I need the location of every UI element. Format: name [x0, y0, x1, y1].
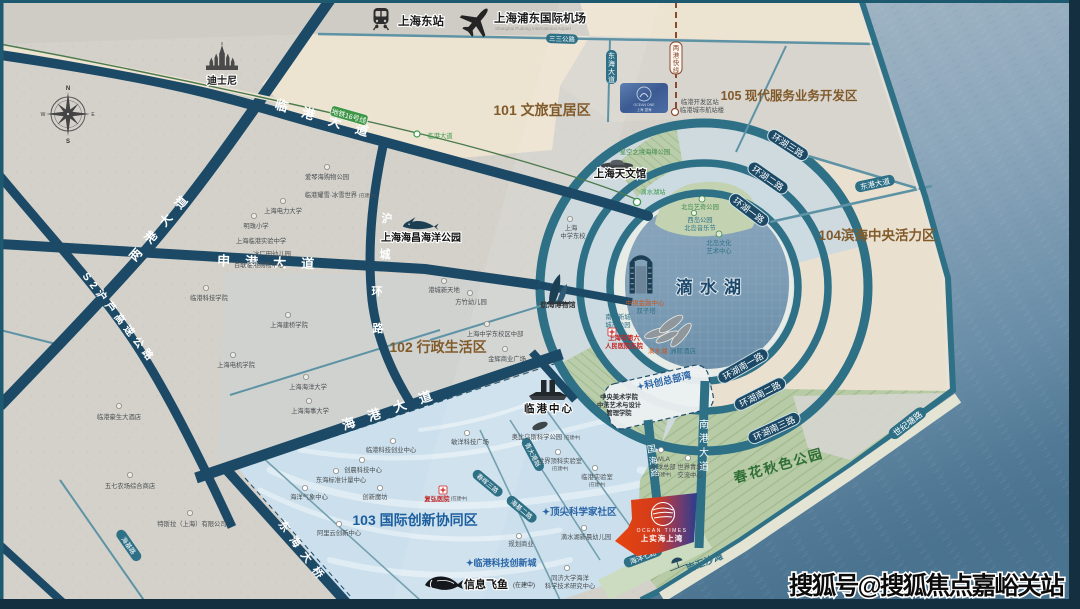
svg-text:两港快线: 两港快线	[673, 44, 680, 75]
svg-text:洲际酒店: 洲际酒店	[670, 346, 697, 355]
svg-text:上海临港实验中学: 上海临港实验中学	[236, 236, 286, 245]
svg-text:临港中心: 临港中心	[524, 402, 574, 415]
svg-text:上海建桥学院: 上海建桥学院	[270, 320, 308, 329]
svg-text:全球总部: 全球总部	[650, 462, 675, 471]
svg-text:临港科技创业中心: 临港科技创业中心	[366, 445, 417, 454]
svg-text:五七农场综合商店: 五七农场综合商店	[105, 481, 155, 490]
svg-text:S: S	[66, 139, 70, 145]
svg-text:信息飞鱼: 信息飞鱼	[464, 577, 508, 591]
svg-text:中学东校: 中学东校	[560, 231, 586, 240]
svg-text:临港城市航站楼: 临港城市航站楼	[680, 105, 725, 114]
svg-text:WLA: WLA	[656, 456, 670, 463]
svg-text:南汇新城: 南汇新城	[605, 312, 631, 321]
svg-text:101 文旅宜居区: 101 文旅宜居区	[493, 102, 590, 118]
svg-text:上海海洋大学: 上海海洋大学	[289, 382, 327, 391]
svg-text:北岛音乐节: 北岛音乐节	[684, 223, 715, 232]
svg-text:中银金融中心: 中银金融中心	[626, 298, 666, 307]
svg-text:艺术中心: 艺术中心	[706, 246, 732, 255]
svg-text:上海东站: 上海东站	[398, 14, 444, 28]
svg-text:临港大道: 临港大道	[427, 131, 453, 140]
svg-text:百联临港购物中心: 百联临港购物中心	[234, 260, 285, 269]
svg-text:迪士尼: 迪士尼	[207, 74, 237, 87]
svg-text:人民医院东院: 人民医院东院	[605, 341, 643, 350]
svg-text:OCEAN ONE: OCEAN ONE	[633, 103, 655, 107]
svg-text:✦顶尖科学家社区: ✦顶尖科学家社区	[542, 506, 617, 518]
svg-text:(在建中): (在建中)	[451, 495, 468, 502]
svg-text:科学技术研究中心: 科学技术研究中心	[545, 581, 596, 590]
svg-text:双子塔: 双子塔	[636, 306, 656, 315]
svg-text:创新魔坊: 创新魔坊	[362, 492, 388, 501]
svg-text:上海海事大学: 上海海事大学	[291, 406, 329, 415]
svg-text:规划商业: 规划商业	[508, 539, 533, 548]
svg-text:上实海上湾: 上实海上湾	[641, 533, 684, 543]
svg-text:103 国际创新协同区: 103 国际创新协同区	[352, 512, 477, 528]
svg-text:阿里云创新中心: 阿里云创新中心	[317, 528, 362, 537]
svg-text:Shanghai Pudong International: Shanghai Pudong International Airport	[495, 26, 572, 31]
svg-text:明珠小学: 明珠小学	[243, 221, 268, 230]
svg-text:102 行政生活区: 102 行政生活区	[389, 339, 486, 355]
svg-text:上海 望海: 上海 望海	[637, 107, 652, 112]
svg-text:中央美术学院: 中央美术学院	[600, 392, 638, 401]
svg-text:中法艺术与设计: 中法艺术与设计	[597, 400, 642, 409]
svg-text:上海: 上海	[565, 223, 578, 232]
svg-text:世界顶科实验室: 世界顶科实验室	[538, 456, 582, 465]
svg-text:上海电力大学: 上海电力大学	[264, 206, 302, 215]
svg-text:临港豪生大酒店: 临港豪生大酒店	[97, 412, 141, 421]
svg-text:104滨海中央活力区: 104滨海中央活力区	[818, 227, 936, 243]
svg-text:滴水湖新晨幼儿园: 滴水湖新晨幼儿园	[561, 532, 611, 541]
svg-text:金辉商业广场: 金辉商业广场	[488, 354, 526, 363]
svg-text:同济大学海洋: 同济大学海洋	[551, 573, 589, 582]
svg-text:管理学院: 管理学院	[606, 408, 632, 417]
svg-text:特斯拉（上海）有限公司: 特斯拉（上海）有限公司	[157, 519, 226, 528]
svg-text:滴水湖: 滴水湖	[648, 346, 668, 355]
svg-text:航海博物馆: 航海博物馆	[541, 300, 576, 309]
svg-text:交流中心: 交流中心	[677, 470, 703, 479]
svg-text:上海海昌海洋公园: 上海海昌海洋公园	[381, 231, 461, 244]
svg-text:上海中学东校区中部: 上海中学东校区中部	[467, 329, 524, 338]
svg-text:冰厂田幼儿园: 冰厂田幼儿园	[253, 249, 291, 258]
svg-text:西岛公园: 西岛公园	[687, 215, 712, 224]
svg-text:滴水湖: 滴水湖	[676, 277, 748, 297]
svg-text:临港科技学院: 临港科技学院	[190, 293, 228, 302]
svg-text:东海标准计量中心: 东海标准计量中心	[316, 475, 367, 484]
svg-text:W: W	[41, 112, 46, 118]
svg-text:敏洋科技广场: 敏洋科技广场	[451, 437, 489, 446]
svg-text:105 现代服务业务开发区: 105 现代服务业务开发区	[721, 88, 858, 103]
svg-text:上海浦东国际机场: 上海浦东国际机场	[494, 11, 586, 25]
svg-text:创晨科技中心: 创晨科技中心	[344, 465, 382, 474]
svg-text:N: N	[66, 86, 70, 92]
svg-text:搜狐号@搜狐焦点嘉峪关站: 搜狐号@搜狐焦点嘉峪关站	[789, 571, 1064, 600]
svg-text:(在建中): (在建中)	[655, 471, 672, 478]
svg-text:临港实验室: 临港实验室	[581, 472, 612, 481]
svg-text:上海天文馆: 上海天文馆	[594, 167, 647, 180]
svg-text:✦临港科技创新城: ✦临港科技创新城	[466, 557, 537, 568]
svg-text:世界青年: 世界青年	[677, 462, 702, 471]
svg-text:临港开发区站: 临港开发区站	[681, 97, 719, 106]
svg-text:港城新天地: 港城新天地	[428, 285, 460, 294]
svg-text:海洋气象中心: 海洋气象中心	[290, 492, 328, 501]
svg-text:爱琴海购物公园: 爱琴海购物公园	[305, 172, 349, 181]
svg-text:北岛文化: 北岛文化	[706, 238, 732, 247]
svg-text:(在建中): (在建中)	[552, 465, 569, 472]
svg-text:滴水湖站: 滴水湖站	[640, 187, 666, 196]
svg-text:星空之境海绵公园: 星空之境海绵公园	[620, 147, 670, 156]
svg-text:方竹幼儿园: 方竹幼儿园	[455, 297, 486, 306]
svg-text:北岛艺奇公园: 北岛艺奇公园	[681, 202, 719, 211]
svg-text:(在建中): (在建中)	[589, 481, 606, 488]
svg-text:(在建中): (在建中)	[513, 581, 535, 589]
svg-text:上海市第六: 上海市第六	[608, 333, 640, 342]
svg-text:复弘医院: 复弘医院	[423, 494, 450, 503]
svg-text:上海电机学院: 上海电机学院	[217, 360, 255, 369]
svg-text:东海大道: 东海大道	[608, 51, 615, 84]
